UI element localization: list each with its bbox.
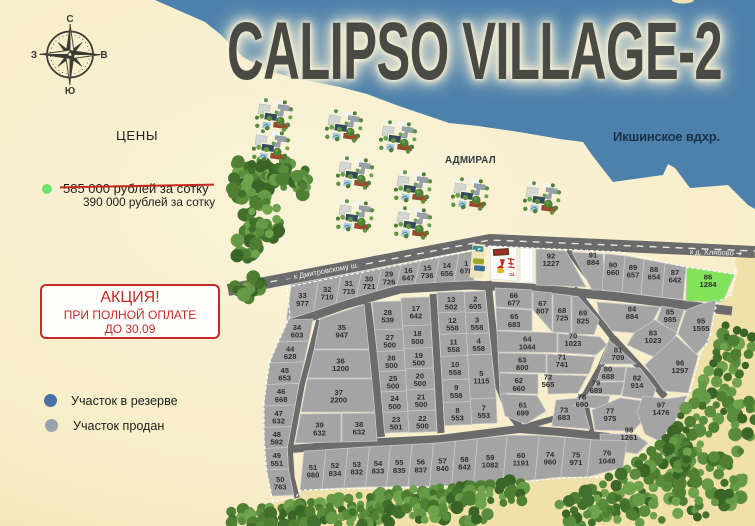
svg-text:553: 553 xyxy=(451,414,464,423)
svg-text:З: З xyxy=(31,50,37,61)
svg-text:500: 500 xyxy=(412,358,425,367)
svg-text:763: 763 xyxy=(274,483,287,492)
svg-text:833: 833 xyxy=(372,467,385,476)
svg-text:683: 683 xyxy=(508,320,521,329)
svg-text:688: 688 xyxy=(602,372,615,381)
svg-text:1200: 1200 xyxy=(332,364,349,373)
svg-text:500: 500 xyxy=(411,337,424,346)
svg-text:551: 551 xyxy=(270,459,283,468)
svg-text:699: 699 xyxy=(516,408,529,417)
svg-text:502: 502 xyxy=(445,302,458,311)
svg-text:1191: 1191 xyxy=(513,459,530,468)
svg-text:605: 605 xyxy=(469,302,482,311)
svg-text:977: 977 xyxy=(296,299,309,308)
svg-text:500: 500 xyxy=(388,402,401,411)
svg-text:842: 842 xyxy=(458,463,471,472)
svg-text:С: С xyxy=(66,14,73,25)
svg-text:657: 657 xyxy=(627,271,640,280)
svg-text:741: 741 xyxy=(556,360,569,369)
svg-text:975: 975 xyxy=(604,414,617,423)
svg-text:500: 500 xyxy=(416,421,429,430)
svg-text:592: 592 xyxy=(270,438,283,447)
svg-text:1082: 1082 xyxy=(482,461,499,470)
svg-text:660: 660 xyxy=(512,384,525,393)
svg-text:985: 985 xyxy=(664,315,677,324)
svg-text:715: 715 xyxy=(342,287,355,296)
svg-text:1555: 1555 xyxy=(693,324,711,333)
svg-text:642: 642 xyxy=(410,312,423,321)
svg-text:1048: 1048 xyxy=(599,456,616,465)
svg-text:683: 683 xyxy=(558,413,571,422)
svg-text:884: 884 xyxy=(587,258,600,267)
svg-text:825: 825 xyxy=(577,316,590,325)
svg-text:628: 628 xyxy=(284,352,297,361)
svg-text:1297: 1297 xyxy=(672,366,689,375)
svg-text:654: 654 xyxy=(648,273,661,282)
svg-text:971: 971 xyxy=(570,458,583,467)
svg-text:500: 500 xyxy=(414,379,427,388)
svg-text:Ю: Ю xyxy=(65,86,75,97)
svg-text:В: В xyxy=(100,50,107,61)
svg-text:500: 500 xyxy=(385,361,398,370)
svg-text:к д. Хлябово ➔: к д. Хлябово ➔ xyxy=(690,247,743,258)
svg-text:603: 603 xyxy=(291,331,304,340)
svg-text:837: 837 xyxy=(414,465,427,474)
svg-text:500: 500 xyxy=(387,381,400,390)
svg-text:1476: 1476 xyxy=(653,408,670,417)
svg-text:800: 800 xyxy=(516,363,529,372)
svg-text:647: 647 xyxy=(402,274,415,283)
svg-text:884: 884 xyxy=(626,312,639,321)
svg-text:501: 501 xyxy=(390,422,403,431)
svg-text:736: 736 xyxy=(421,271,434,280)
svg-text:689: 689 xyxy=(590,386,603,395)
svg-text:558: 558 xyxy=(471,323,484,332)
svg-text:558: 558 xyxy=(449,368,462,377)
svg-text:500: 500 xyxy=(415,400,428,409)
svg-text:980: 980 xyxy=(307,471,320,480)
svg-text:710: 710 xyxy=(321,293,334,302)
svg-text:1227: 1227 xyxy=(543,259,560,268)
svg-text:1044: 1044 xyxy=(519,342,537,351)
svg-text:1023: 1023 xyxy=(645,336,662,345)
svg-text:947: 947 xyxy=(335,331,348,340)
svg-text:565: 565 xyxy=(542,380,555,389)
svg-text:840: 840 xyxy=(436,464,449,473)
svg-text:832: 832 xyxy=(350,468,363,477)
svg-text:553: 553 xyxy=(477,411,490,420)
svg-text:726: 726 xyxy=(383,277,396,286)
svg-text:834: 834 xyxy=(329,469,342,478)
svg-text:677: 677 xyxy=(507,299,520,308)
svg-text:690: 690 xyxy=(576,400,589,409)
svg-text:660: 660 xyxy=(607,268,620,277)
svg-text:960: 960 xyxy=(544,458,557,467)
svg-text:835: 835 xyxy=(393,466,406,475)
svg-text:632: 632 xyxy=(272,416,285,425)
svg-text:709: 709 xyxy=(612,353,625,362)
svg-text:539: 539 xyxy=(381,316,394,325)
svg-text:500: 500 xyxy=(383,340,396,349)
svg-text:914: 914 xyxy=(631,381,644,390)
svg-text:1115: 1115 xyxy=(473,377,490,386)
svg-text:558: 558 xyxy=(450,391,463,400)
svg-text:558: 558 xyxy=(446,323,459,332)
svg-text:807: 807 xyxy=(536,307,549,316)
svg-text:642: 642 xyxy=(669,276,682,285)
svg-text:558: 558 xyxy=(472,344,485,353)
svg-text:632: 632 xyxy=(313,428,326,437)
svg-text:721: 721 xyxy=(363,282,376,291)
svg-text:558: 558 xyxy=(447,345,460,354)
svg-text:668: 668 xyxy=(275,395,288,404)
svg-text:2200: 2200 xyxy=(330,396,347,405)
svg-text:1284: 1284 xyxy=(700,280,718,289)
svg-text:656: 656 xyxy=(440,269,453,278)
svg-text:1023: 1023 xyxy=(565,339,582,348)
svg-text:725: 725 xyxy=(556,314,569,323)
svg-text:632: 632 xyxy=(353,428,366,437)
svg-text:24: 24 xyxy=(510,272,516,277)
svg-text:653: 653 xyxy=(278,373,291,382)
